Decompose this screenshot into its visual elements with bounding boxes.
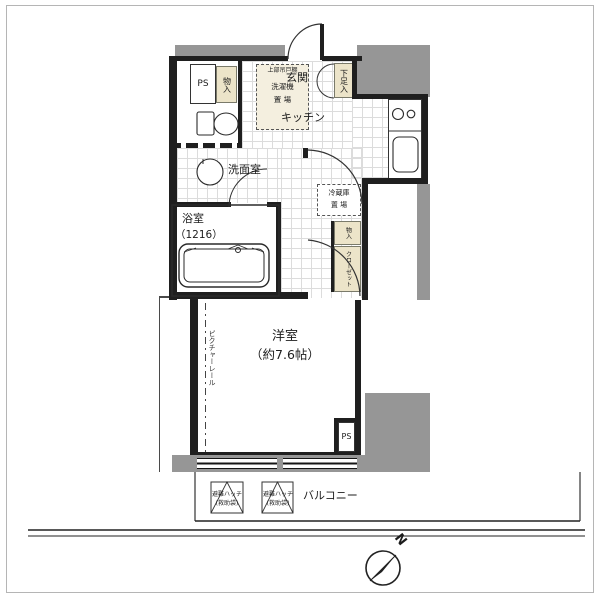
shoe-door-arc-top [317, 64, 334, 81]
washroom-door-arc [308, 150, 362, 204]
western-room-label: 洋室 [240, 330, 330, 345]
floor-plan: PS 物入 上部吊戸棚 洗濯機 置 場 下足入 冷蔵庫 置 場 物入 クローゼッ… [0, 0, 600, 599]
stove-burner-1 [393, 109, 404, 120]
kitchen-label: キッチン [281, 112, 325, 125]
washroom-label: 洗面室 [228, 164, 261, 177]
ps-top-label: PS [197, 79, 208, 89]
hatch2-line1: 避難ハッチ [260, 489, 296, 498]
floorplan-linework [0, 0, 600, 599]
balcony-label: バルコニー [303, 490, 358, 503]
hatch2-line2: (救助袋) [260, 498, 296, 507]
hatch1-line1: 避難ハッチ [209, 489, 245, 498]
entrance-door-leaf [320, 24, 324, 60]
shoe-door-arc-bottom [317, 81, 334, 98]
kitchen-sink [393, 137, 418, 172]
room-door-arc [308, 240, 360, 296]
western-room-size-label: （約7.6帖） [228, 348, 342, 362]
hatch1-line2: (救助袋) [209, 498, 245, 507]
pipe-space-top: PS [190, 64, 216, 104]
bathroom-size-label: （1216） [175, 229, 223, 241]
toilet-tank [197, 112, 214, 135]
bathtub-outer [179, 244, 269, 287]
stove-burner-2 [407, 110, 415, 118]
toilet-bowl [214, 113, 238, 135]
bathroom-label: 浴室 [182, 213, 204, 226]
picture-rail-label: ピクチャーレール [208, 330, 215, 386]
genkan-label: 玄関 [286, 72, 308, 85]
escape-hatch-2-label: 避難ハッチ (救助袋) [260, 489, 296, 507]
washbasin [197, 159, 223, 185]
escape-hatch-1-label: 避難ハッチ (救助袋) [209, 489, 245, 507]
entrance-door-arc [288, 24, 322, 59]
